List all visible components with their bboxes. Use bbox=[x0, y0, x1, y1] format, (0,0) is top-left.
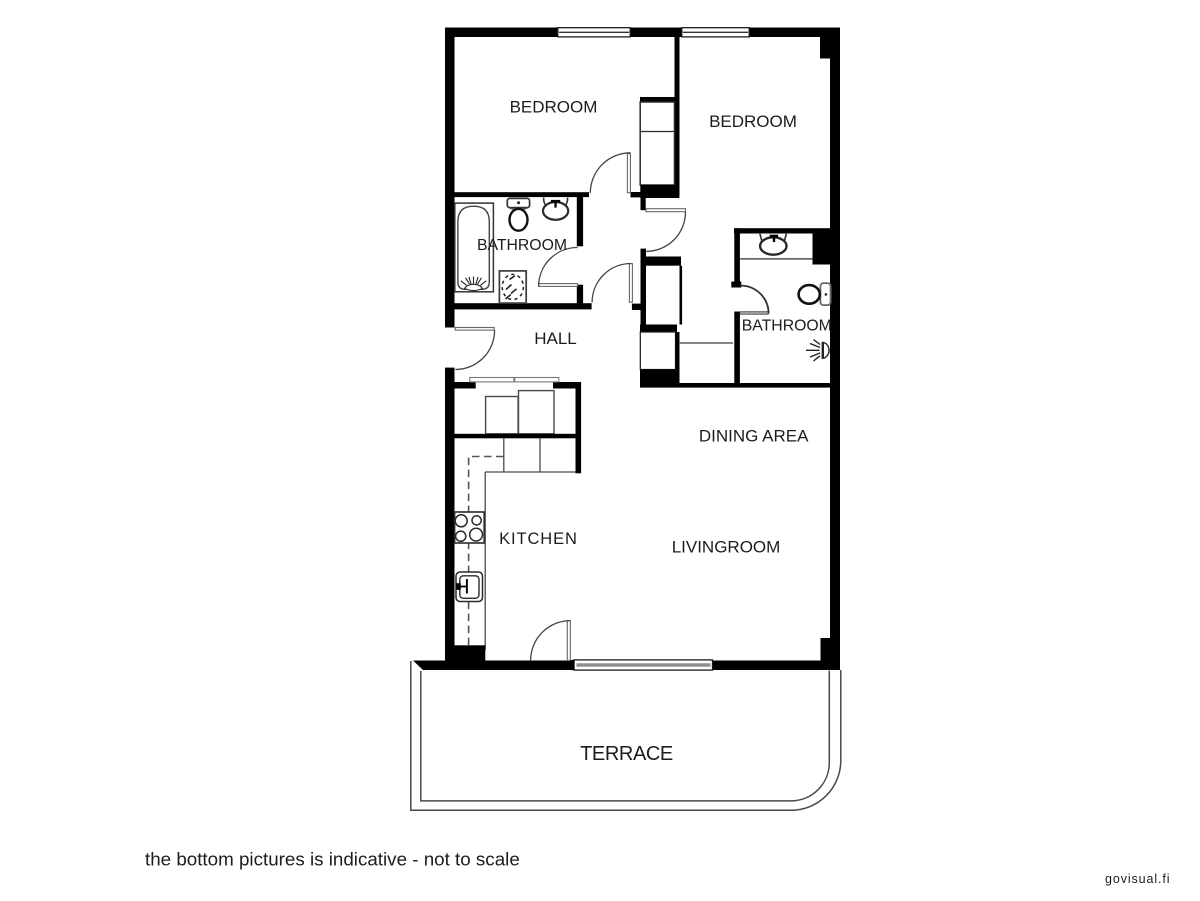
svg-text:BEDROOM: BEDROOM bbox=[510, 98, 598, 117]
svg-text:DINING AREA: DINING AREA bbox=[699, 427, 809, 446]
svg-text:BATHROOM: BATHROOM bbox=[742, 318, 832, 335]
svg-text:TERRACE: TERRACE bbox=[580, 743, 673, 765]
svg-text:BATHROOM: BATHROOM bbox=[477, 237, 567, 254]
svg-text:BEDROOM: BEDROOM bbox=[709, 112, 797, 131]
svg-text:HALL: HALL bbox=[534, 329, 577, 348]
svg-text:govisual.fi: govisual.fi bbox=[1105, 872, 1171, 886]
svg-text:LIVINGROOM: LIVINGROOM bbox=[672, 538, 781, 557]
svg-text:KITCHEN: KITCHEN bbox=[499, 530, 578, 548]
svg-text:the bottom pictures is indicat: the bottom pictures is indicative - not … bbox=[145, 849, 520, 870]
